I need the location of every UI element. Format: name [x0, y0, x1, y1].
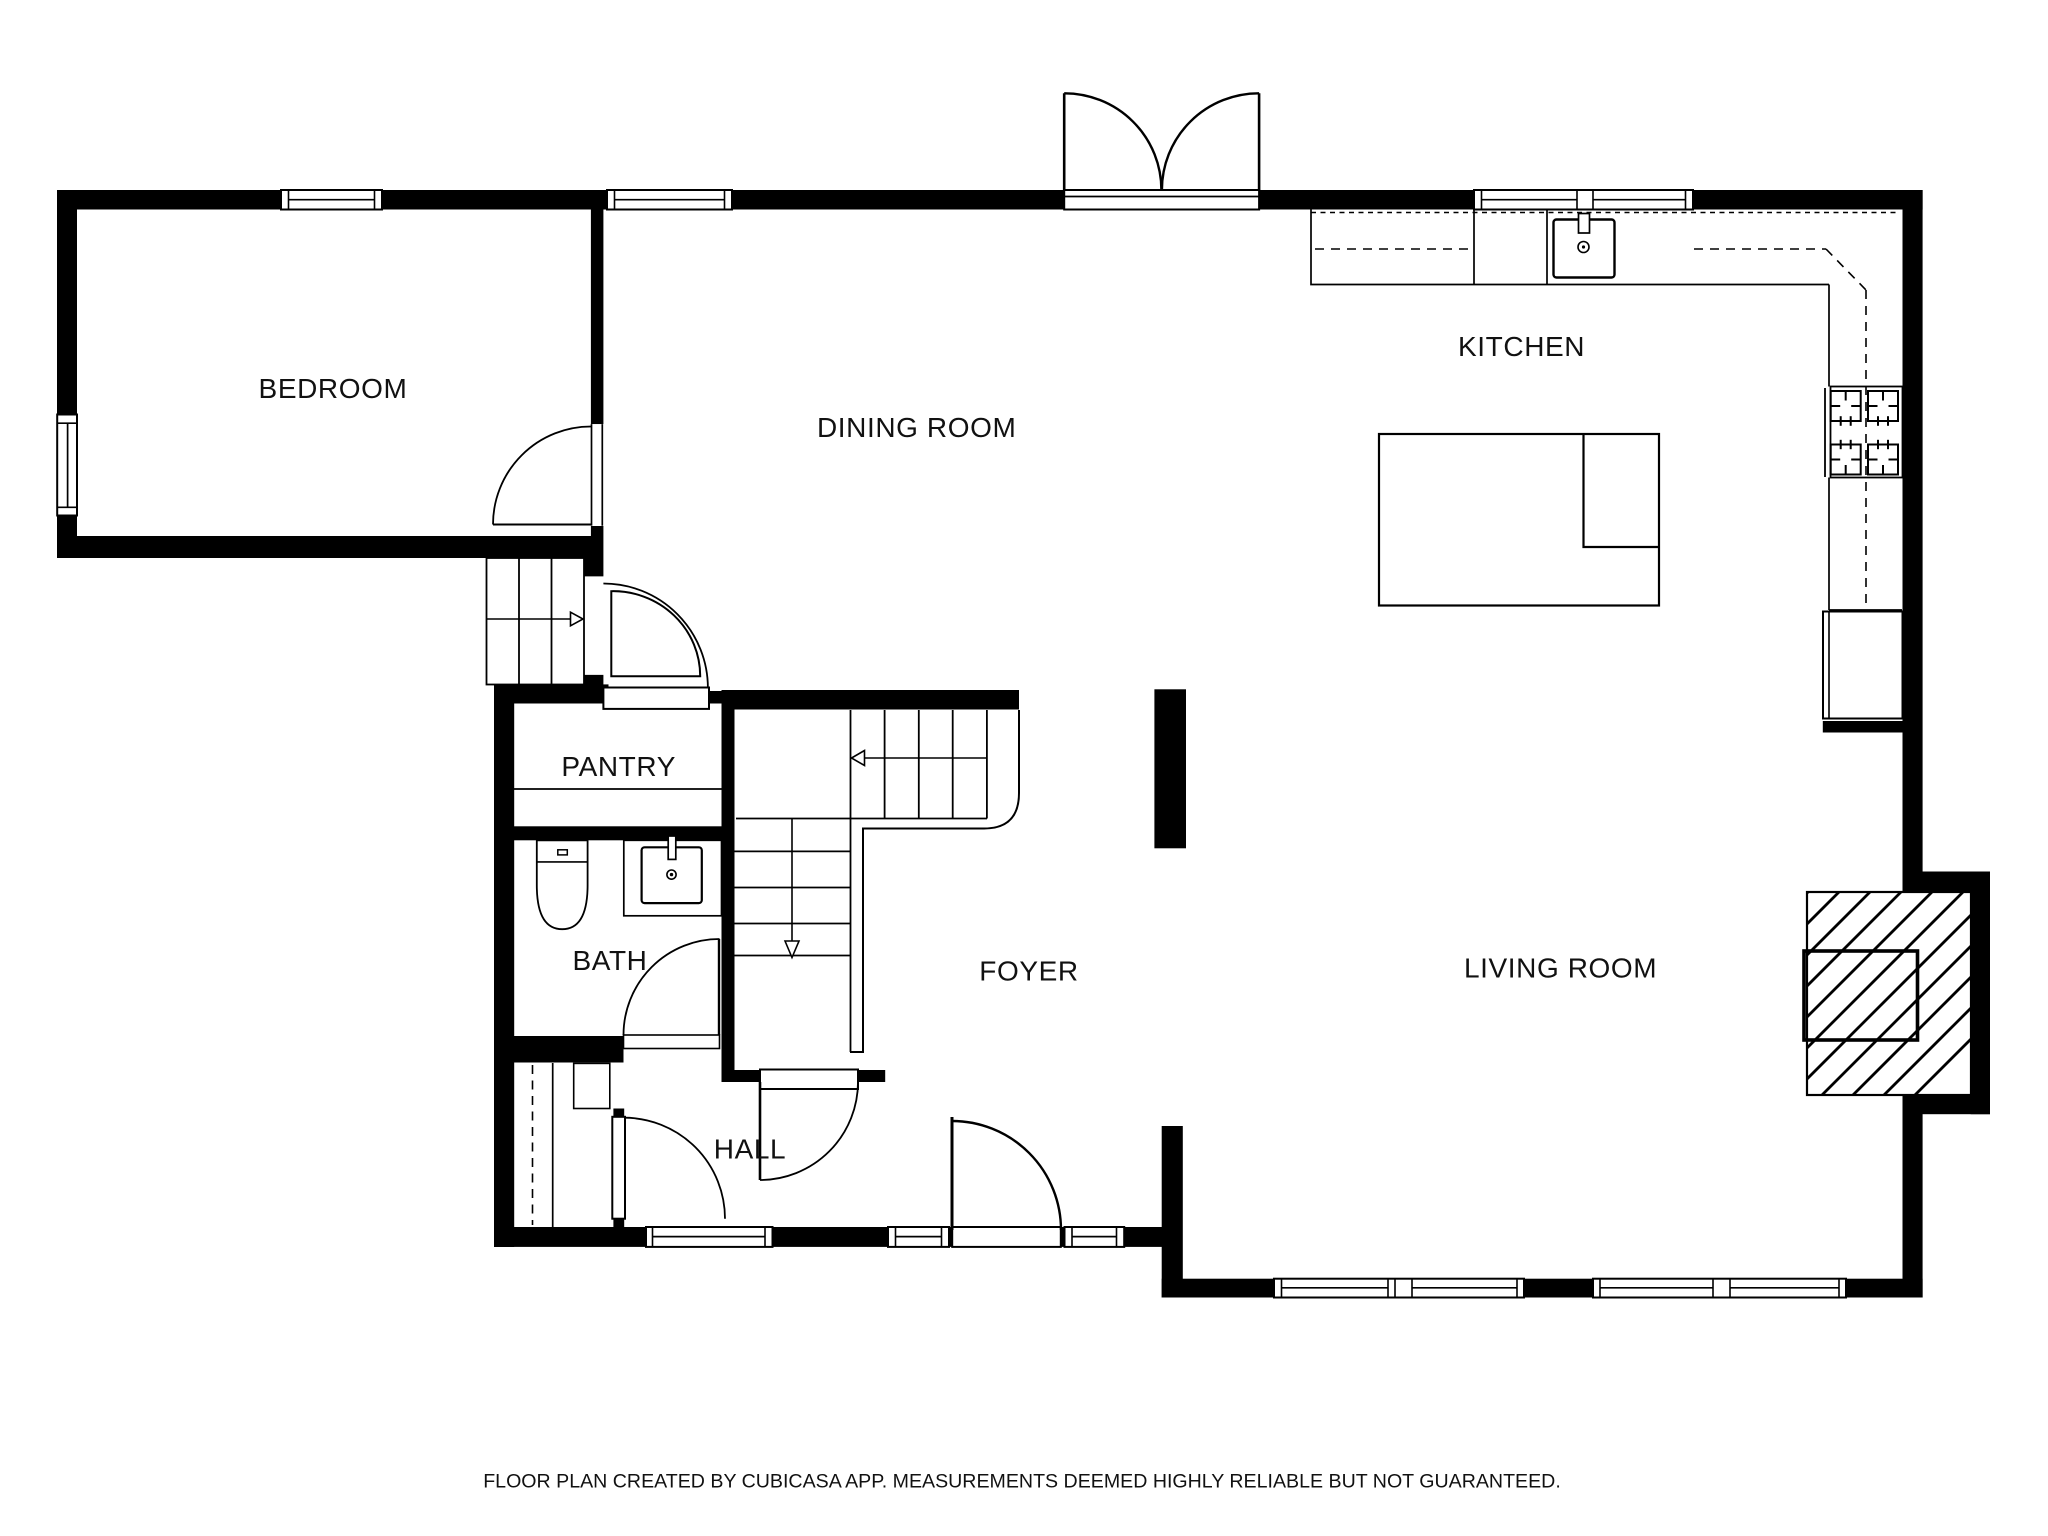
- svg-text:HALL: HALL: [714, 1134, 786, 1165]
- svg-text:BATH: BATH: [573, 945, 648, 976]
- svg-text:LIVING ROOM: LIVING ROOM: [1464, 953, 1657, 984]
- svg-text:DINING ROOM: DINING ROOM: [817, 412, 1016, 443]
- svg-text:KITCHEN: KITCHEN: [1458, 331, 1585, 362]
- svg-text:PANTRY: PANTRY: [561, 751, 676, 782]
- svg-text:FLOOR PLAN CREATED BY CUBICASA: FLOOR PLAN CREATED BY CUBICASA APP. MEAS…: [483, 1471, 1561, 1493]
- svg-text:BEDROOM: BEDROOM: [259, 373, 408, 404]
- svg-text:FOYER: FOYER: [979, 956, 1078, 987]
